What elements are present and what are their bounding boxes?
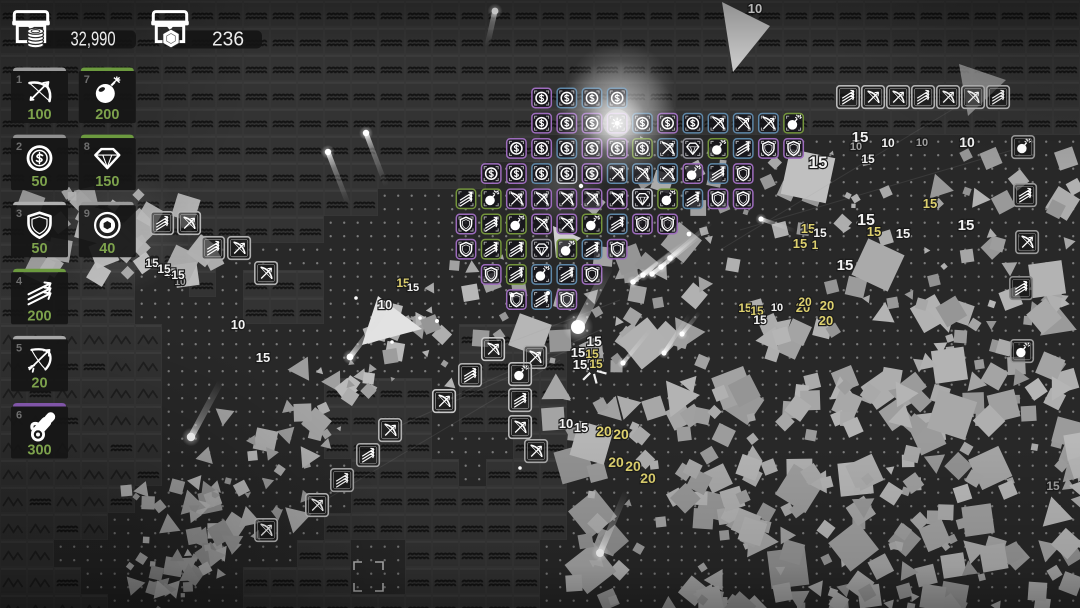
svg-text:15: 15 [896,226,910,241]
svg-text:15: 15 [958,217,975,234]
svg-text:200: 200 [95,107,119,123]
svg-text:32,990: 32,990 [71,29,116,51]
svg-text:20: 20 [798,295,812,309]
svg-text:15: 15 [867,224,881,239]
svg-text:15: 15 [753,313,767,327]
svg-text:5: 5 [16,342,22,354]
svg-text:15: 15 [573,357,587,372]
svg-text:6: 6 [16,410,22,422]
svg-text:1: 1 [16,74,22,86]
svg-text:3: 3 [16,208,22,220]
svg-text:1: 1 [812,238,819,252]
svg-text:20: 20 [596,423,612,439]
svg-text:50: 50 [31,174,47,190]
svg-text:7: 7 [84,74,90,86]
svg-text:9: 9 [84,208,90,220]
svg-text:20: 20 [820,298,834,313]
svg-text:300: 300 [27,443,51,459]
svg-text:15: 15 [793,236,807,251]
svg-text:50: 50 [31,241,47,257]
svg-text:10: 10 [771,302,783,314]
svg-text:20: 20 [31,375,47,391]
svg-text:200: 200 [27,308,51,324]
svg-text:236: 236 [212,29,244,51]
svg-text:150: 150 [95,174,119,190]
svg-text:15: 15 [837,257,854,274]
svg-text:20: 20 [819,313,833,328]
svg-text:10: 10 [559,416,573,431]
svg-text:100: 100 [27,107,51,123]
svg-text:15: 15 [923,196,937,211]
svg-text:15: 15 [589,357,603,371]
svg-text:4: 4 [16,275,23,287]
svg-text:20: 20 [613,426,629,442]
svg-text:15: 15 [407,282,419,294]
svg-text:2: 2 [16,141,22,153]
svg-text:8: 8 [84,141,90,153]
svg-text:40: 40 [99,241,115,257]
svg-text:15: 15 [574,420,588,435]
